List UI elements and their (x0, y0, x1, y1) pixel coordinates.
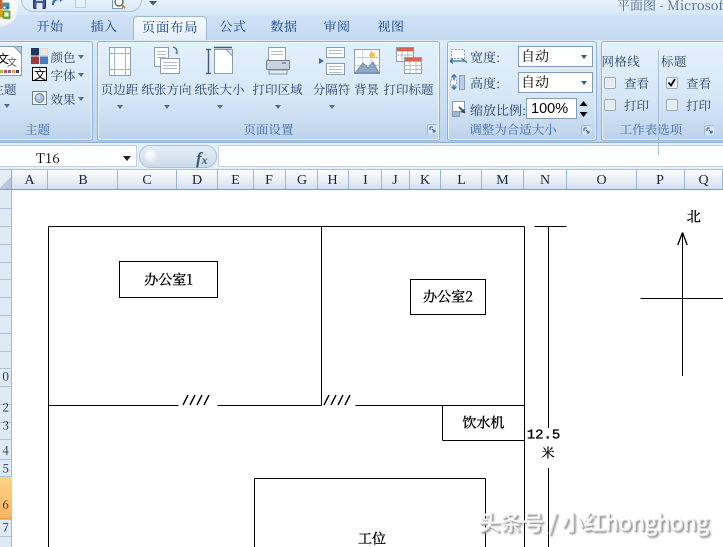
svg-text:文: 文 (7, 54, 17, 69)
svg-text:文: 文 (34, 67, 46, 81)
